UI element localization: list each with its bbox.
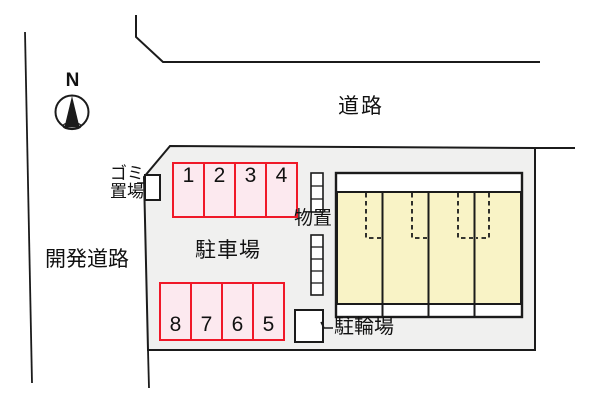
plot-left-boundary-extension [148, 350, 149, 388]
garbage-box [145, 175, 160, 200]
top-road-upper-edge [136, 15, 540, 62]
bicycle-parking-box [295, 310, 323, 342]
stall-number-8: 8 [160, 313, 191, 337]
stall-number-4: 4 [266, 164, 297, 188]
stall-number-3: 3 [235, 164, 266, 188]
bicycle-parking-label: 駐輪場 [334, 317, 394, 338]
site-plan-drawing [0, 0, 600, 400]
road-left-label: 開発道路 [45, 249, 129, 271]
stall-number-6: 6 [222, 313, 253, 337]
left-road-edge [25, 32, 32, 383]
site-plan-diagram: N 道路 開発道路 駐車場 ゴミ 置場 物置 駐輪場 1 2 3 4 8 7 6… [0, 0, 600, 400]
stall-number-7: 7 [191, 313, 222, 337]
stall-number-5: 5 [253, 313, 284, 337]
parking-lot-label: 駐車場 [195, 240, 261, 262]
compass-north-label: N [62, 71, 83, 91]
storage-lockers-top [311, 173, 323, 212]
road-top-label: 道路 [338, 96, 384, 118]
storage-lockers-bottom [311, 235, 323, 295]
stall-number-1: 1 [173, 164, 204, 188]
storage-label: 物置 [294, 209, 332, 229]
stall-number-2: 2 [204, 164, 235, 188]
garbage-area-label: ゴミ 置場 [99, 165, 144, 201]
apartment-building [336, 173, 522, 317]
